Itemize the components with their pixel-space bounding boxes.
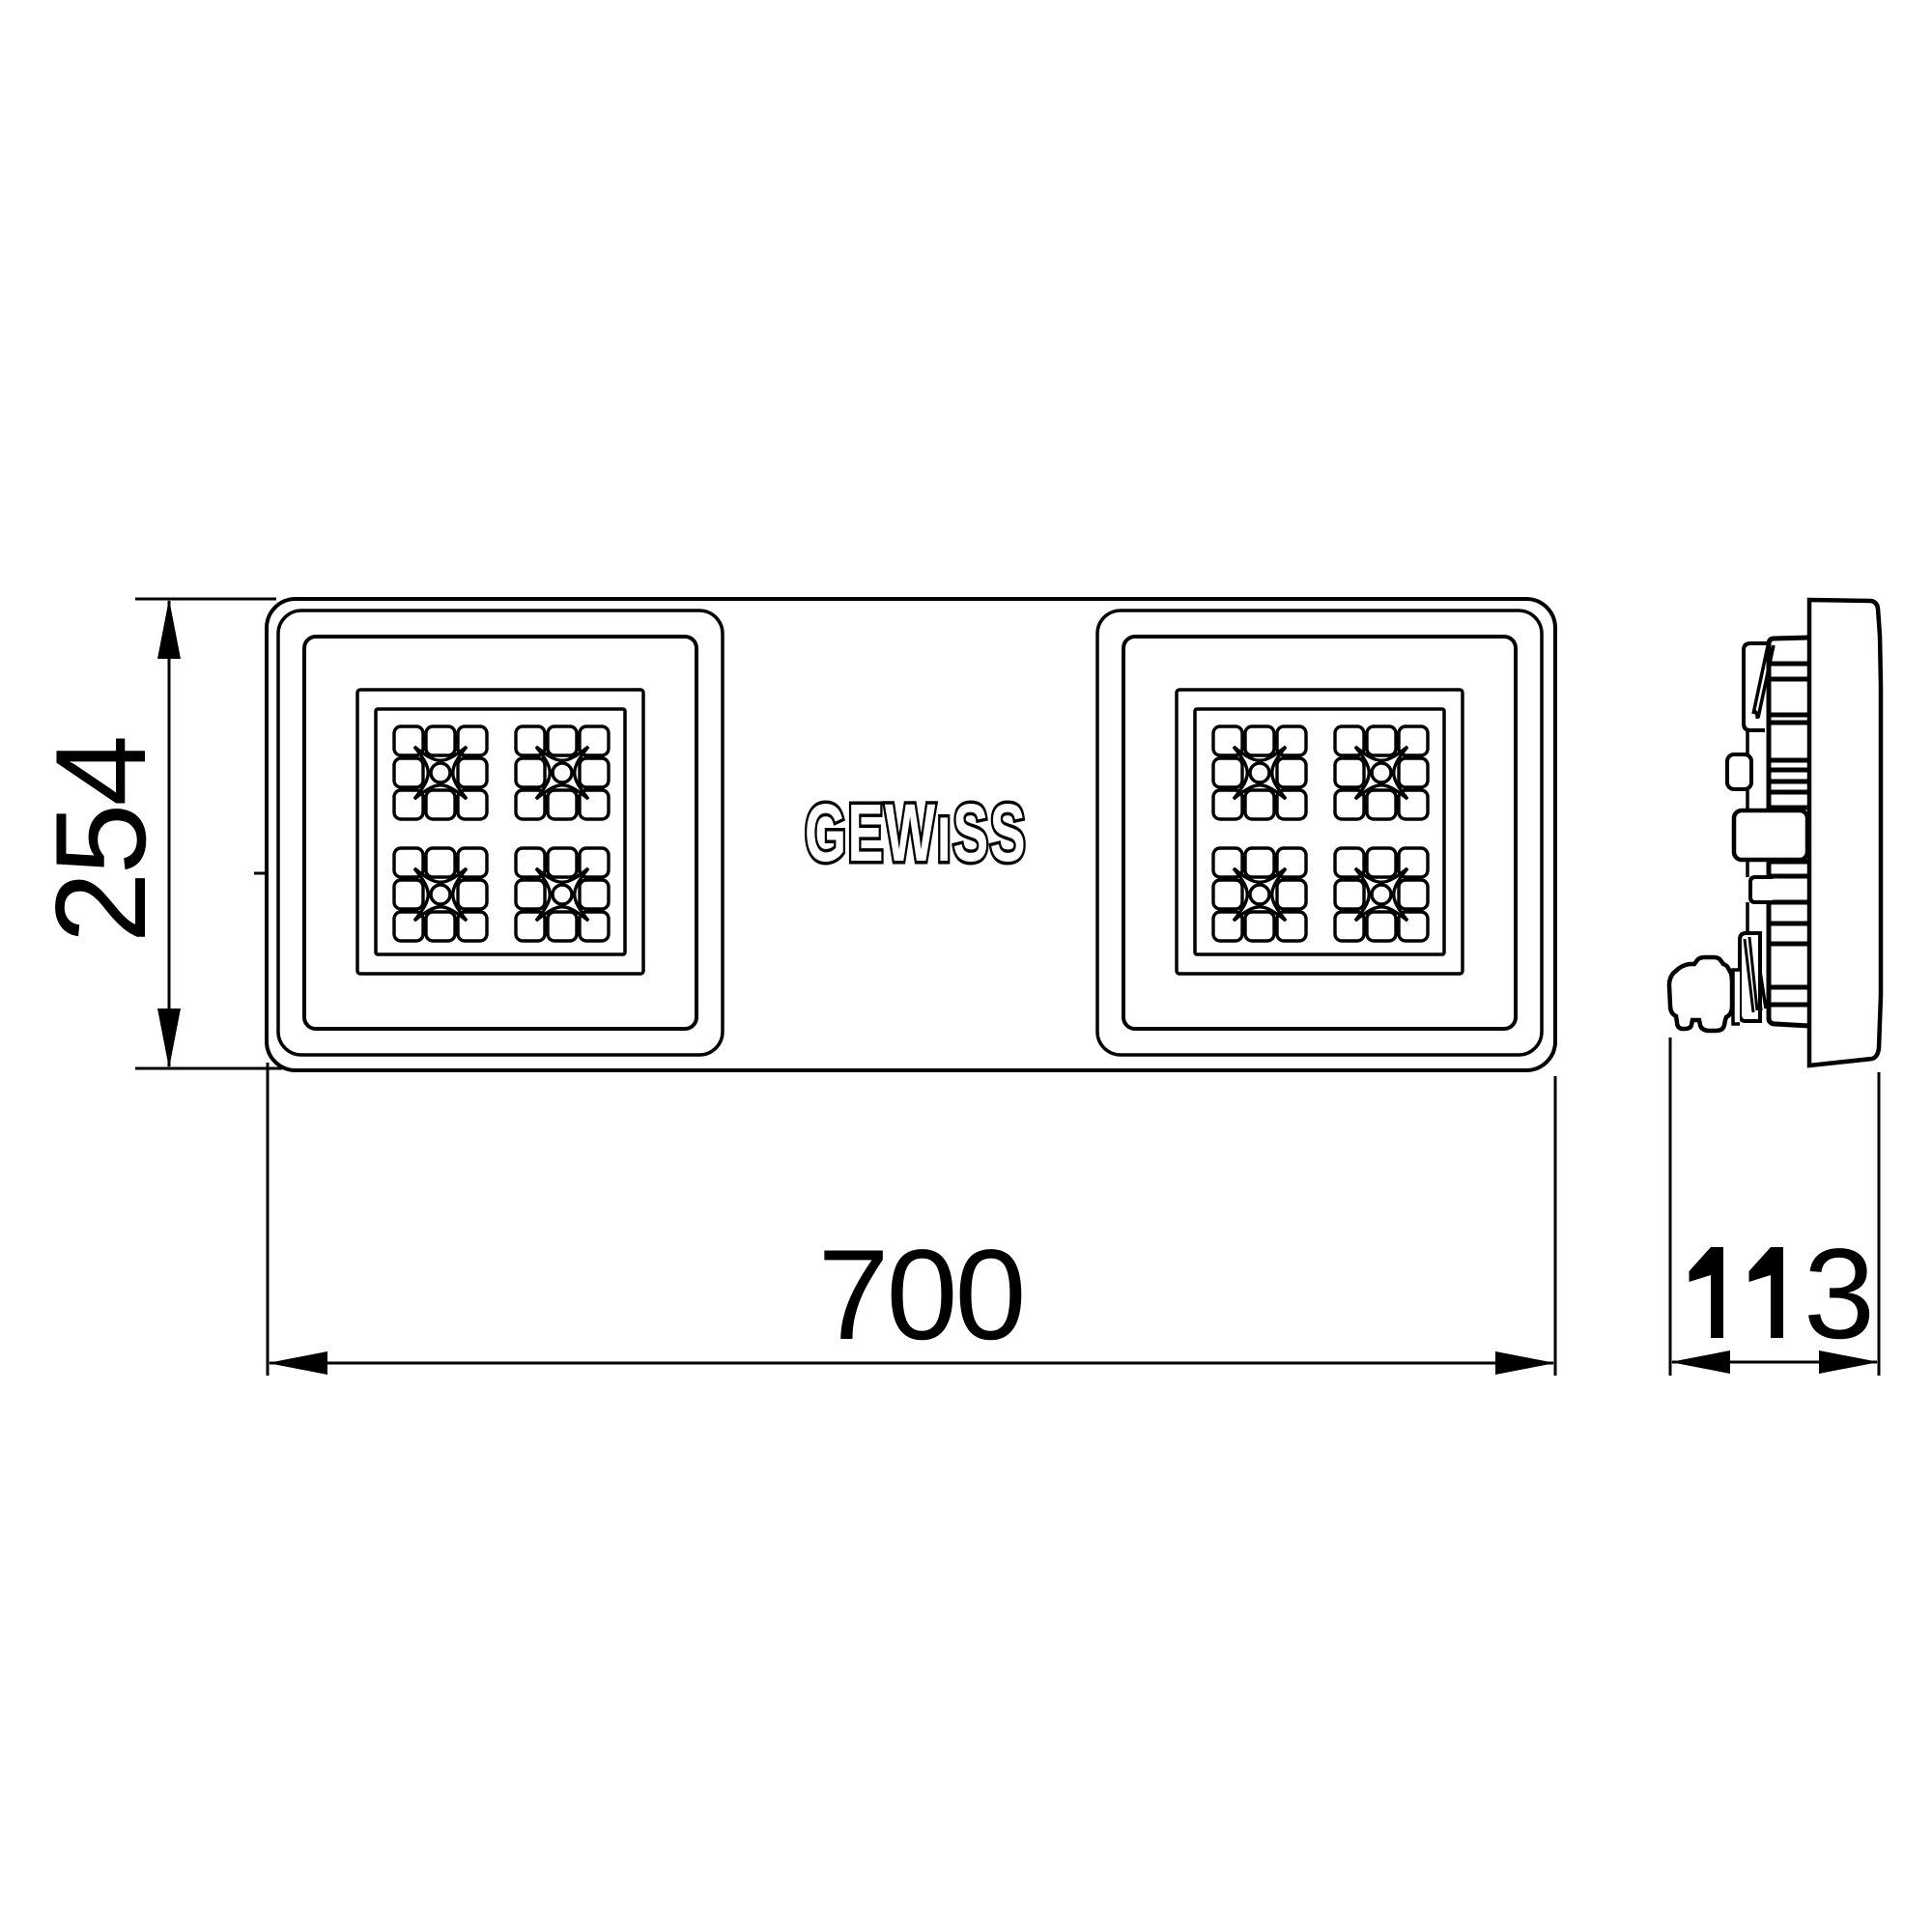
svg-text:3: 3	[1804, 1223, 1875, 1366]
svg-text:700: 700	[818, 1224, 1024, 1367]
svg-text:GEWıSS: GEWıSS	[805, 787, 1027, 878]
svg-text:254: 254	[30, 738, 173, 944]
